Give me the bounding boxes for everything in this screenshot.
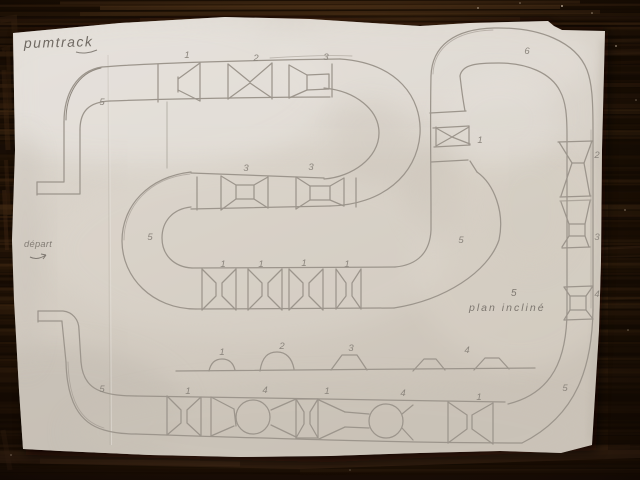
svg-text:1: 1 <box>344 259 349 270</box>
svg-text:3: 3 <box>323 52 329 63</box>
svg-text:1: 1 <box>477 135 482 146</box>
svg-text:4: 4 <box>594 289 599 300</box>
svg-text:4: 4 <box>464 345 469 356</box>
svg-text:1: 1 <box>185 386 190 397</box>
svg-text:1: 1 <box>258 259 263 270</box>
svg-text:1: 1 <box>220 259 225 270</box>
svg-text:2: 2 <box>278 341 285 352</box>
svg-text:5: 5 <box>147 232 153 243</box>
svg-text:5: 5 <box>99 384 105 395</box>
svg-text:3: 3 <box>594 232 600 243</box>
svg-text:3: 3 <box>348 343 354 354</box>
svg-text:4: 4 <box>400 388 405 399</box>
svg-text:3: 3 <box>243 163 249 174</box>
svg-text:plan incliné: plan incliné <box>468 302 546 314</box>
svg-text:5: 5 <box>99 97 105 108</box>
svg-text:1: 1 <box>476 392 481 403</box>
svg-text:4: 4 <box>262 385 267 396</box>
svg-text:3: 3 <box>308 162 314 173</box>
svg-text:1: 1 <box>301 258 306 269</box>
svg-text:5: 5 <box>562 383 568 394</box>
svg-text:6: 6 <box>524 46 530 57</box>
svg-text:5: 5 <box>458 235 464 246</box>
svg-text:1: 1 <box>184 50 189 61</box>
svg-text:5: 5 <box>511 288 517 299</box>
svg-text:départ: départ <box>24 239 52 249</box>
svg-text:2: 2 <box>252 53 259 64</box>
svg-text:2: 2 <box>593 150 600 161</box>
svg-text:1: 1 <box>324 386 329 397</box>
svg-text:1: 1 <box>219 347 224 358</box>
svg-text:pumtrack: pumtrack <box>23 33 94 51</box>
